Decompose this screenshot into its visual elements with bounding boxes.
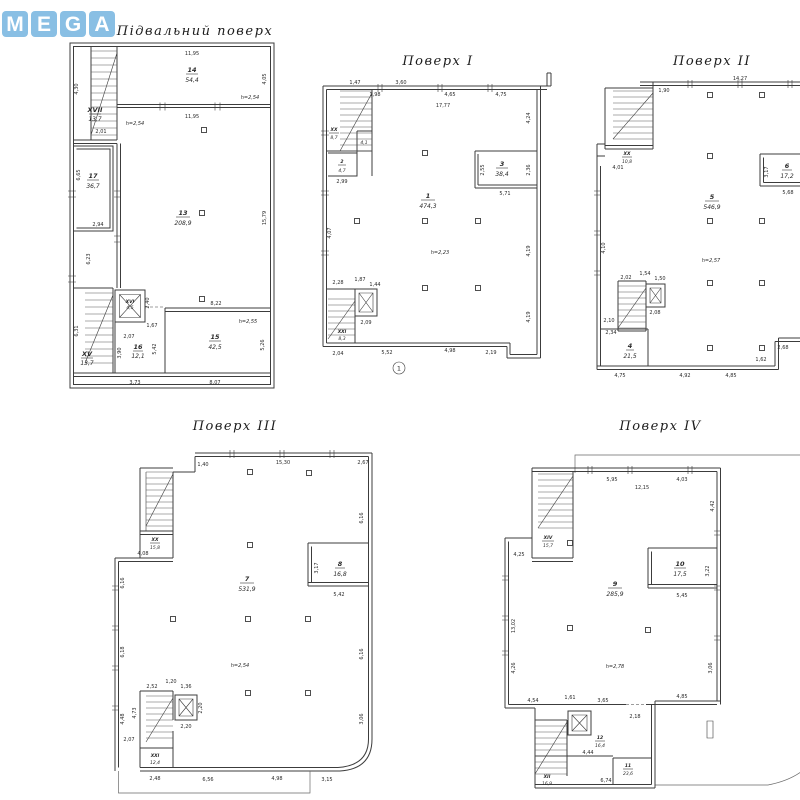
room-number: 7: [245, 575, 250, 583]
room-number: 15: [210, 333, 220, 341]
room-area: 16,4: [595, 743, 605, 749]
watermark-letter: A: [89, 11, 115, 37]
room-number: 13: [178, 209, 188, 217]
column-marker: [568, 541, 651, 633]
dim-label: 4,24: [526, 112, 532, 123]
dim-label: 5,26: [260, 339, 266, 350]
dim-label: 3,06: [359, 713, 365, 724]
dim-label: 3,17: [314, 562, 320, 573]
terrace-outline: [119, 771, 311, 793]
column-marker: [171, 470, 312, 696]
room-area: 23,6: [623, 771, 633, 777]
dim-label: 4,19: [526, 311, 532, 322]
room-area: 15,8: [150, 545, 160, 551]
dim-label: 13,02: [511, 619, 517, 633]
dim-label: 4,42: [710, 500, 716, 511]
dimension-labels: 11,95 4,05 h=2,54 11,95 h=2,54 4,30 2,01…: [74, 51, 268, 386]
room-area: 16,8: [333, 571, 347, 578]
room-area: 531,9: [238, 586, 255, 593]
dim-label: 5,71: [499, 191, 510, 197]
elevator-shaft: [355, 289, 377, 316]
dim-label: 2,34: [605, 330, 616, 336]
dim-label: 2,20: [180, 724, 191, 730]
dim-label: 5,95: [606, 477, 617, 483]
dim-label: 1,40: [197, 462, 208, 468]
dim-label: 2,20: [198, 702, 204, 713]
dim-label: 4,30: [74, 83, 80, 94]
dim-label: 4,07: [327, 227, 333, 238]
dim-label: 1,20: [165, 679, 176, 685]
room-labels: XVII 13,7 14 54,4 17 36,7 13 208,9 XVI 4…: [80, 66, 222, 367]
room-number: XV: [81, 350, 93, 358]
dim-label: 1,61: [564, 695, 575, 701]
dim-label: 3,65: [597, 698, 608, 704]
room-number: 14: [187, 66, 197, 74]
room-area: 38,4: [495, 171, 509, 178]
room-number: 16: [133, 343, 143, 351]
wall-outline: [502, 466, 721, 788]
room-number: 9: [613, 580, 618, 588]
dim-label: 1,44: [369, 282, 380, 288]
room-number: 17: [88, 172, 98, 180]
room-number: XX: [330, 127, 338, 133]
room-number: 3: [500, 160, 505, 168]
dim-label: 6,65: [76, 169, 82, 180]
room-number: 5: [710, 193, 715, 201]
dim-label: 3,60: [395, 80, 406, 86]
room-number: XXI: [150, 753, 160, 759]
dim-label: 1,50: [654, 276, 665, 282]
dim-label: 2,07: [123, 737, 134, 743]
watermark-letter: E: [31, 11, 57, 37]
room-area: 54,4: [185, 77, 199, 84]
stair-flight: [146, 472, 173, 742]
column-marker: [355, 151, 481, 291]
floorplan-basement-drawing: XVII 13,7 14 54,4 17 36,7 13 208,9 XVI 4…: [65, 41, 280, 395]
floorplans-sheet: M E G A Підвальний поверх: [0, 0, 800, 800]
stair-flight: [85, 51, 117, 363]
floorplan-3-drawing: XX 15,8 7 531,9 8 16,8 XXI 12,4 1,40 15,…: [80, 436, 390, 800]
height-note: h=2,54: [241, 95, 260, 101]
dimension-labels: 1,40 15,30 2,67 6,16 6,16 3,06 6,16 6,18…: [120, 460, 369, 783]
axis-marker: 1: [393, 362, 405, 374]
dim-label: 1,62: [755, 357, 766, 363]
dim-label: 2,09: [360, 320, 371, 326]
dim-label: 2,52: [146, 684, 157, 690]
room-area: 15,7: [543, 543, 553, 549]
plan-title: Поверх II: [588, 54, 800, 69]
dim-label: 2,01: [95, 129, 106, 135]
column-marker: [200, 128, 207, 302]
room-area: 17,5: [673, 571, 687, 578]
room-number: 8: [338, 560, 343, 568]
room-number: XX: [623, 151, 631, 157]
dim-label: 8,07: [209, 380, 220, 386]
room-number: XXI: [337, 329, 347, 335]
mega-watermark: M E G A: [2, 11, 115, 37]
dim-label: 15,79: [262, 211, 268, 225]
dim-label: 2,19: [485, 350, 496, 356]
dim-label: 4,85: [725, 373, 736, 379]
dim-label: 2,02: [620, 275, 631, 281]
axis-label: 1: [397, 365, 401, 373]
dim-label: 3,73: [129, 380, 140, 386]
height-note: h=2,54: [231, 663, 250, 669]
dim-label: 4,26: [511, 662, 517, 673]
room-area: 4,1: [360, 140, 367, 146]
dim-label: 6,16: [359, 648, 365, 659]
stair-flight: [613, 91, 653, 328]
dim-label: 14,27: [733, 76, 747, 82]
room-area: 12,4: [150, 760, 160, 766]
dim-label: 6,16: [359, 512, 365, 523]
room-number: 6: [785, 162, 790, 170]
dim-label: 1,36: [180, 684, 191, 690]
dim-label: 15,30: [276, 460, 290, 466]
room-number: 1: [426, 192, 431, 200]
dim-label: 4,92: [679, 373, 690, 379]
dim-label: 6,74: [600, 778, 611, 784]
room-area: 13,7: [88, 116, 102, 123]
height-note: h=2,78: [606, 664, 625, 670]
dim-label: 2,08: [649, 310, 660, 316]
dim-label: 4,98: [271, 776, 282, 782]
room-number: 12: [597, 735, 603, 741]
dim-label: 4,54: [527, 698, 538, 704]
room-number: XVI: [125, 299, 135, 305]
elevator-shaft: [175, 695, 197, 720]
dim-label: 1,47: [349, 80, 360, 86]
height-note: h=2,55: [239, 319, 258, 325]
plan-title: Поверх III: [80, 419, 390, 434]
dim-label: 6,31: [74, 325, 80, 336]
wall-outline: [112, 450, 372, 771]
dim-label: 4,01: [612, 165, 623, 171]
dim-label: 4,85: [676, 694, 687, 700]
dim-label: 4,03: [676, 477, 687, 483]
dim-label: 4,19: [526, 245, 532, 256]
room-area: 16,9: [542, 781, 552, 787]
dim-label: 4,44: [582, 750, 593, 756]
dim-label: 11,95: [185, 114, 199, 120]
dim-label: 2,10: [603, 318, 614, 324]
elevator-shaft: [568, 711, 591, 735]
dim-label: 2,55: [480, 164, 486, 175]
elevator-shaft: [646, 284, 665, 307]
dim-label: 2,36: [526, 164, 532, 175]
plan-floor-1: Поверх I: [318, 54, 558, 383]
plan-floor-4: Поверх IV: [488, 419, 800, 800]
dim-label: 6,16: [120, 577, 126, 588]
room-number: 11: [625, 763, 631, 769]
wall-outline: [594, 80, 800, 370]
plan-title: Поверх I: [318, 54, 558, 69]
dim-label: 1,87: [354, 277, 365, 283]
room-labels: XIV 15,7 9 285,9 10 17,5 12 16,4 11 23,6…: [542, 535, 687, 787]
dim-label: 8,22: [210, 301, 221, 307]
dim-label: 4,73: [132, 707, 138, 718]
room-number: XVII: [87, 106, 103, 114]
dim-label: 2,28: [332, 280, 343, 286]
height-note: h=2,54: [126, 121, 145, 127]
floorplan-4-drawing: XIV 15,7 9 285,9 10 17,5 12 16,4 11 23,6…: [488, 436, 800, 800]
dim-label: 1,54: [639, 271, 650, 277]
room-labels: XX 8,7 4,1 2 4,7 1 474,3 3 38,4 XXI 8,3: [329, 127, 509, 342]
room-area: 4,5: [126, 305, 133, 311]
dim-label: 4,75: [495, 92, 506, 98]
dim-label: 12,15: [635, 485, 649, 491]
room-area: 8,7: [330, 135, 337, 141]
room-area: 546,9: [703, 204, 720, 211]
dim-label: 3,22: [705, 565, 711, 576]
dimension-labels: 14,27 1,90 1,82 4,55 4,91 4,70 4,01 4,10…: [601, 76, 800, 379]
height-note: h=2,57: [702, 258, 721, 264]
dim-label: 2,68: [777, 345, 788, 351]
dim-label: 2,18: [629, 714, 640, 720]
plan-floor-3: Поверх III: [80, 419, 390, 800]
dim-label: 2,04: [332, 351, 343, 357]
room-area: 12,1: [131, 353, 144, 360]
dim-label: 5,42: [333, 592, 344, 598]
room-area: 21,5: [623, 353, 637, 360]
room-number: 2: [340, 159, 343, 165]
room-area: 4,7: [338, 168, 345, 174]
room-area: 36,7: [86, 183, 100, 190]
watermark-letter: G: [60, 11, 86, 37]
dim-label: 5,52: [381, 350, 392, 356]
dim-label: 2,40: [145, 297, 151, 308]
watermark-letter: M: [2, 11, 28, 37]
dim-label: 4,08: [137, 551, 148, 557]
dim-label: 2,94: [92, 222, 103, 228]
dim-label: 5,68: [782, 190, 793, 196]
dim-label: 4,10: [601, 242, 607, 253]
dim-label: 11,95: [185, 51, 199, 57]
dim-label: 4,98: [444, 348, 455, 354]
room-area: 13,7: [80, 360, 94, 367]
dim-label: 1,98: [369, 92, 380, 98]
dim-label: 5,42: [152, 343, 158, 354]
room-area: 208,9: [174, 220, 191, 227]
room-number: XII: [543, 774, 551, 780]
terrace-outline: [575, 455, 800, 785]
dim-label: 1,90: [658, 88, 669, 94]
column-marker: [708, 93, 765, 351]
dim-label: 2,48: [149, 776, 160, 782]
dim-label: 17,77: [436, 103, 450, 109]
dim-label: 6,56: [202, 777, 213, 783]
dim-label: 4,25: [513, 552, 524, 558]
dim-label: 5,45: [676, 593, 687, 599]
room-area: 474,3: [419, 203, 436, 210]
dim-label: 1,67: [146, 323, 157, 329]
dim-label: 2,99: [336, 179, 347, 185]
room-number: 4: [628, 342, 633, 350]
dim-label: 3,06: [708, 662, 714, 673]
floorplan-2-drawing: XX 10,8 5 546,9 6 17,2 4 21,5 14,27 1,90…: [588, 71, 800, 389]
room-number: XX: [151, 537, 159, 543]
room-area: 17,2: [780, 173, 794, 180]
dim-label: 2,07: [123, 334, 134, 340]
plan-basement: Підвальний поверх: [65, 24, 280, 395]
dim-label: 4,75: [614, 373, 625, 379]
height-note: h=2,23: [431, 250, 450, 256]
room-number: 10: [675, 560, 685, 568]
plan-floor-2: Поверх II: [588, 54, 800, 389]
dim-label: 2,67: [357, 460, 368, 466]
dim-label: 6,18: [120, 646, 126, 657]
room-number: XIV: [543, 535, 553, 541]
dim-label: 4,65: [444, 92, 455, 98]
dim-label: 3,90: [117, 347, 123, 358]
floorplan-1-drawing: 1 XX 8,7 4,1 2 4,7 1 474,3 3 38,4 XXI 8,…: [318, 71, 558, 383]
dim-label: 3,17: [764, 166, 770, 177]
dim-label: 4,48: [120, 713, 126, 724]
plan-title: Поверх IV: [488, 419, 800, 434]
dim-label: 3,15: [321, 777, 332, 783]
dim-label: 4,05: [262, 73, 268, 84]
dim-label: 6,23: [86, 253, 92, 264]
room-area: 285,9: [606, 591, 623, 598]
room-area: 8,3: [338, 336, 345, 342]
room-area: 42,5: [208, 344, 222, 351]
